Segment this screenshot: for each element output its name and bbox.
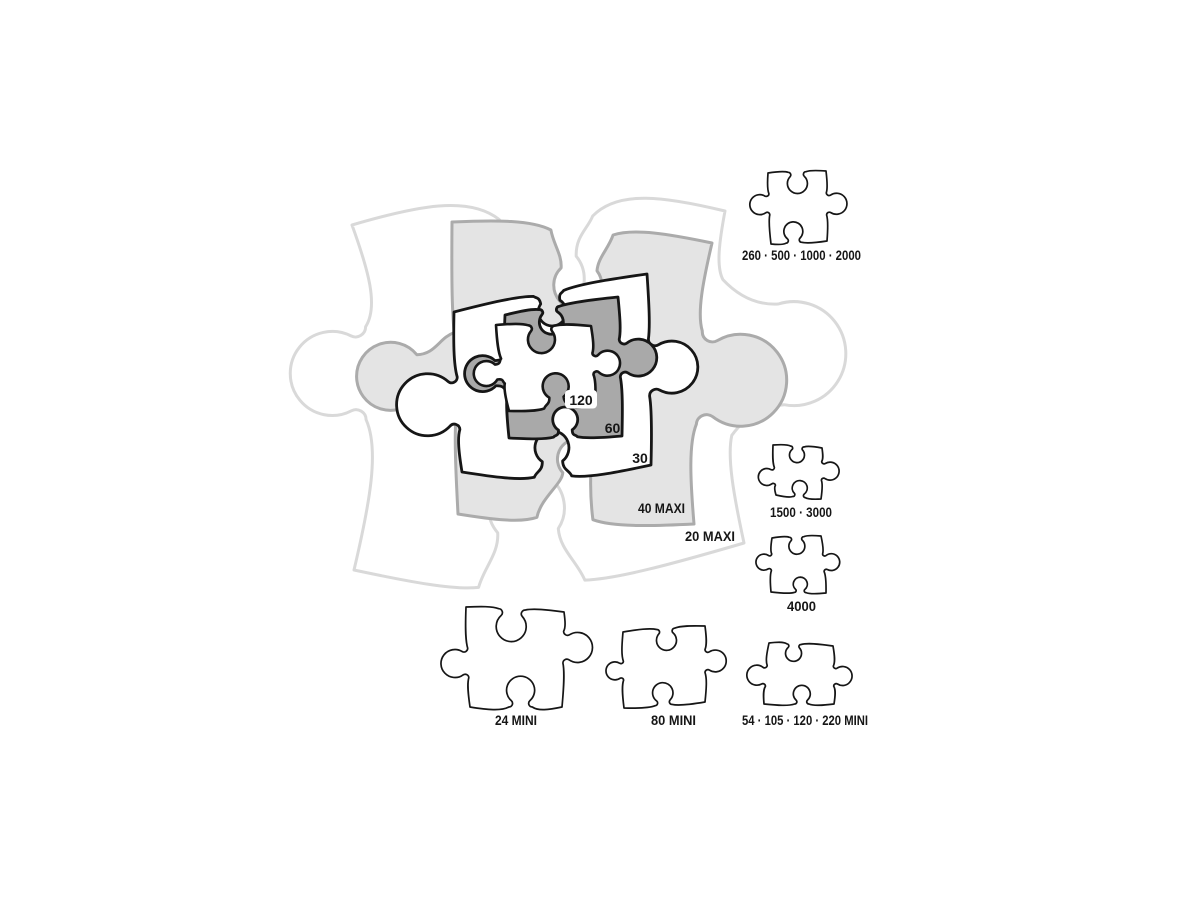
svg-text:80 MINI: 80 MINI	[651, 713, 696, 728]
svg-text:30: 30	[632, 450, 648, 466]
svg-text:260 · 500 · 1000 · 2000: 260 · 500 · 1000 · 2000	[742, 247, 861, 263]
svg-text:24 MINI: 24 MINI	[495, 713, 537, 728]
svg-text:54 · 105 · 120 · 220 MINI: 54 · 105 · 120 · 220 MINI	[742, 713, 868, 728]
svg-text:120: 120	[569, 392, 593, 408]
svg-text:60: 60	[605, 420, 621, 436]
svg-text:20 MAXI: 20 MAXI	[685, 529, 735, 544]
svg-text:1500 · 3000: 1500 · 3000	[770, 504, 832, 520]
svg-text:4000: 4000	[787, 598, 816, 614]
svg-text:40 MAXI: 40 MAXI	[638, 501, 685, 516]
